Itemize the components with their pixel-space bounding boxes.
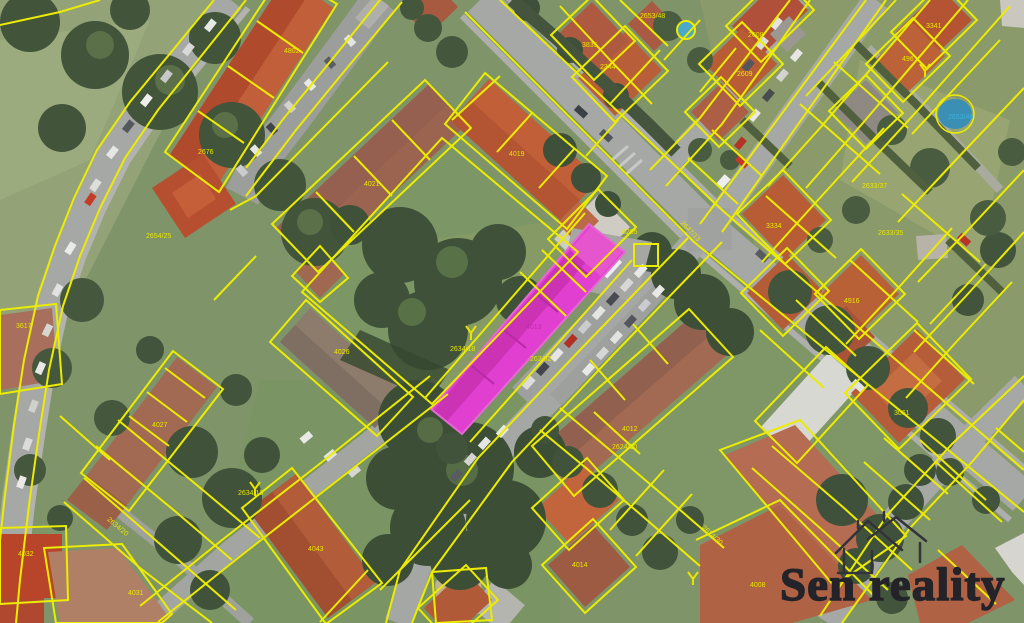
svg-text:2609: 2609: [737, 71, 753, 78]
svg-text:2633/37: 2633/37: [862, 183, 887, 190]
svg-text:3617: 3617: [16, 323, 32, 330]
svg-text:2654/25: 2654/25: [146, 233, 171, 240]
svg-text:2653/48: 2653/48: [640, 13, 665, 20]
svg-text:4802: 4802: [284, 48, 300, 55]
svg-text:2344: 2344: [600, 64, 616, 71]
svg-text:2608: 2608: [748, 32, 764, 39]
svg-text:4032: 4032: [18, 551, 34, 558]
svg-text:3061: 3061: [894, 410, 910, 417]
svg-text:4013: 4013: [526, 324, 542, 331]
svg-text:3835: 3835: [582, 42, 598, 49]
svg-text:4014: 4014: [572, 562, 588, 569]
svg-text:2634/18: 2634/18: [238, 490, 263, 497]
svg-text:4027: 4027: [152, 422, 168, 429]
svg-text:2634/18: 2634/18: [450, 346, 475, 353]
svg-text:2634/2: 2634/2: [530, 356, 552, 363]
svg-text:4012: 4012: [622, 426, 638, 433]
svg-text:2676: 2676: [198, 149, 214, 156]
svg-text:496: 496: [902, 56, 914, 63]
svg-text:4019: 4019: [509, 151, 525, 158]
svg-text:3334: 3334: [766, 223, 782, 230]
svg-text:4008: 4008: [750, 582, 766, 589]
svg-text:4031: 4031: [128, 590, 144, 597]
svg-text:4043: 4043: [308, 546, 324, 553]
svg-text:2624/10: 2624/10: [612, 444, 637, 451]
svg-text:4021: 4021: [364, 181, 380, 188]
svg-text:4916: 4916: [844, 298, 860, 305]
svg-text:2633/35: 2633/35: [878, 230, 903, 237]
svg-text:Sen reality: Sen reality: [780, 559, 1006, 611]
svg-text:3341: 3341: [926, 23, 942, 30]
svg-text:8205: 8205: [622, 229, 638, 236]
svg-text:2653/46: 2653/46: [948, 114, 973, 121]
svg-text:4026: 4026: [334, 349, 350, 356]
